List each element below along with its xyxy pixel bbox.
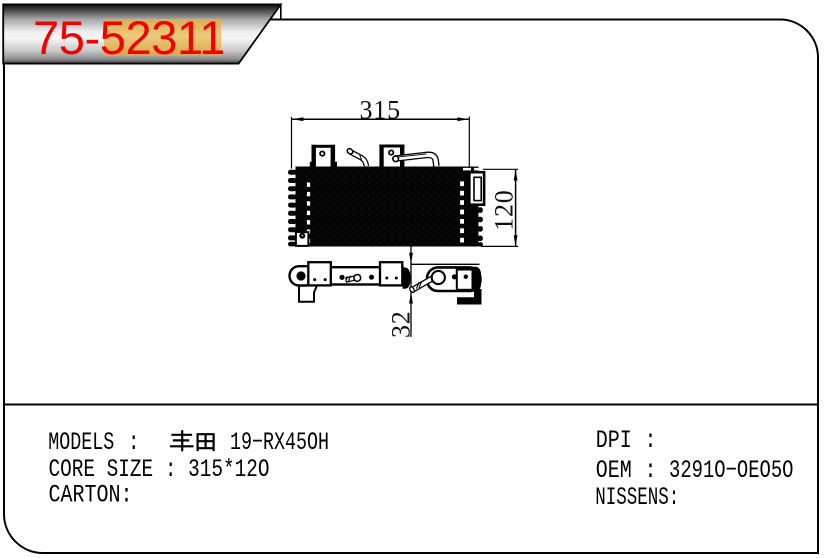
svg-text:315: 315 — [360, 95, 401, 124]
svg-text::: : — [645, 426, 657, 455]
svg-text:OEM: OEM — [596, 456, 632, 485]
svg-text::: : — [645, 456, 657, 485]
svg-text:DPI: DPI — [596, 426, 632, 455]
svg-text:3291O−OEO5O: 3291O−OEO5O — [669, 456, 794, 485]
svg-text:NISSENS:: NISSENS: — [595, 483, 679, 512]
svg-text::: : — [128, 428, 140, 457]
svg-text:19−RX45OH: 19−RX45OH — [230, 428, 329, 457]
svg-text:120: 120 — [489, 189, 518, 230]
svg-text:CARTON:: CARTON: — [49, 480, 133, 509]
svg-text:MODELS: MODELS — [48, 428, 114, 457]
svg-text:32: 32 — [386, 310, 415, 338]
svg-text:75-52311: 75-52311 — [33, 11, 225, 64]
